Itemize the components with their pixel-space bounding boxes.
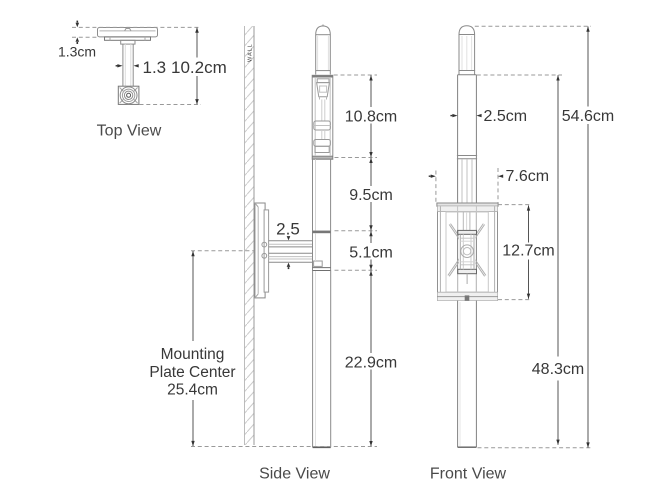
svg-text:9.5cm: 9.5cm [349, 187, 393, 204]
svg-text:Top View: Top View [97, 123, 162, 140]
svg-text:7.6cm: 7.6cm [506, 168, 550, 185]
svg-text:54.6cm: 54.6cm [562, 108, 614, 125]
svg-text:Side View: Side View [259, 465, 330, 482]
svg-text:1.3cm: 1.3cm [58, 43, 96, 59]
svg-text:Plate Center: Plate Center [149, 364, 235, 381]
svg-text:10.2cm: 10.2cm [171, 58, 227, 77]
svg-text:Mounting: Mounting [161, 346, 225, 363]
svg-text:1.3: 1.3 [143, 58, 167, 77]
svg-text:10.8cm: 10.8cm [345, 109, 397, 126]
svg-text:22.9cm: 22.9cm [345, 354, 397, 371]
svg-text:5.1cm: 5.1cm [349, 244, 393, 261]
svg-text:12.7cm: 12.7cm [502, 243, 554, 260]
svg-text:2.5cm: 2.5cm [484, 108, 528, 125]
svg-text:48.3cm: 48.3cm [532, 361, 584, 378]
svg-text:25.4cm: 25.4cm [167, 382, 218, 399]
svg-text:WALL: WALL [247, 43, 253, 62]
svg-text:2.5: 2.5 [276, 220, 300, 239]
svg-text:Front View: Front View [430, 465, 507, 482]
